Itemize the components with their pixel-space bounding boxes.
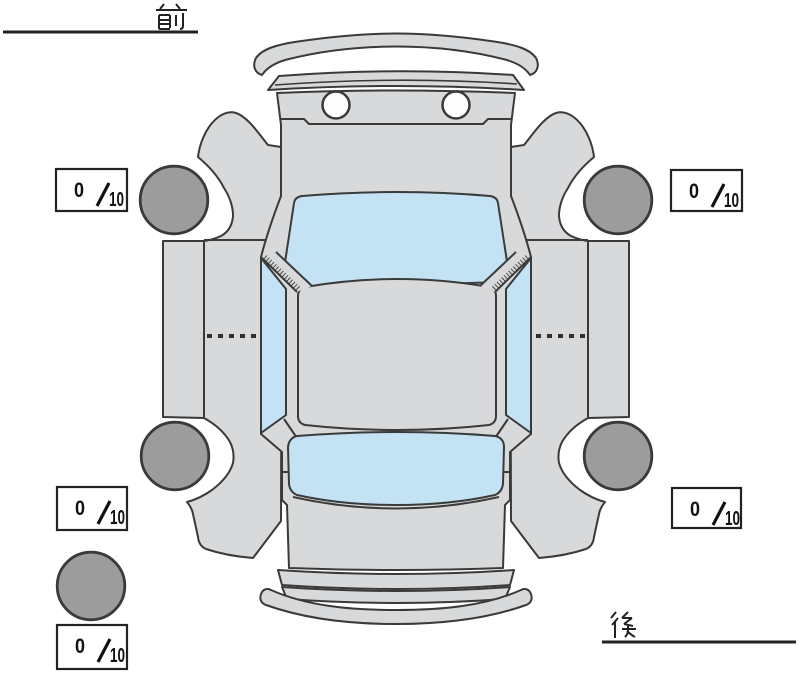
- svg-text:0: 0: [74, 179, 84, 202]
- svg-text:10: 10: [109, 189, 124, 211]
